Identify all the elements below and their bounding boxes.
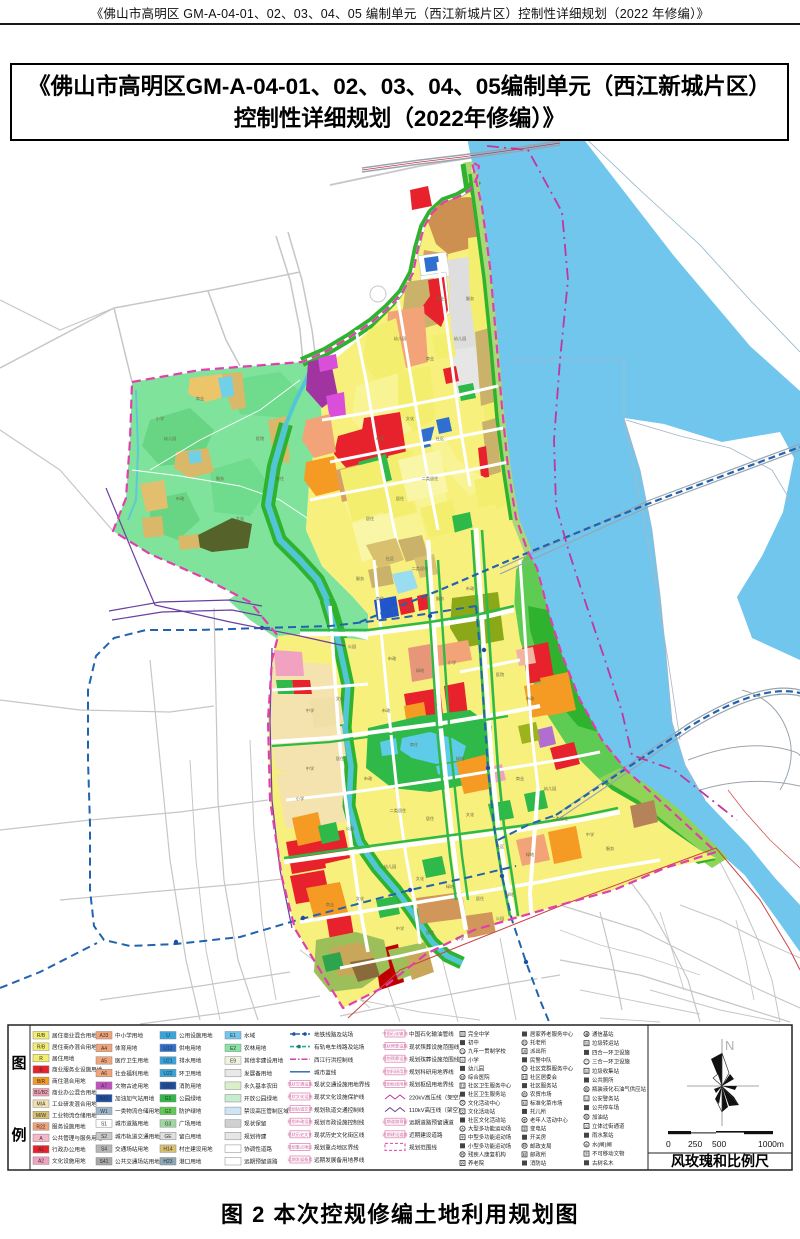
svg-text:居住: 居住 [366,515,375,522]
svg-text:S1: S1 [101,1121,107,1127]
svg-text:水: 水 [585,1142,589,1147]
svg-text:交通场站用地: 交通场站用地 [115,1145,149,1153]
svg-text:小学: 小学 [468,1056,479,1064]
svg-text:九年一贯制学校: 九年一贯制学校 [468,1047,506,1055]
svg-text:规划殡葬设施范围线: 规划殡葬设施范围线 [409,1055,460,1063]
svg-text:商住混合用地: 商住混合用地 [52,1077,86,1085]
svg-text:G3: G3 [165,1121,172,1127]
svg-text:社区服务站: 社区服务站 [530,1082,558,1090]
svg-text:绿地: 绿地 [416,667,425,673]
svg-text:风玫瑰和比例尺: 风玫瑰和比例尺 [671,1153,769,1169]
svg-text:公用设施用地: 公用设施用地 [179,1032,213,1040]
svg-text:有轨电车线路及站场: 有轨电车线路及站场 [314,1043,365,1051]
svg-text:市政: 市政 [376,435,385,442]
svg-text:幼儿园: 幼儿园 [394,335,407,342]
svg-text:邮政支局: 邮政支局 [530,1142,552,1150]
svg-text:绿地: 绿地 [506,891,515,897]
svg-text:古树名木: 古树名木 [592,1159,614,1167]
svg-text:体育用地: 体育用地 [115,1044,138,1052]
svg-text:居住: 居住 [396,495,405,502]
svg-text:1000m: 1000m [758,1139,784,1149]
svg-text:居住用地: 居住用地 [52,1054,75,1062]
svg-text:完全中学: 完全中学 [468,1030,490,1038]
svg-text:服务: 服务 [466,295,475,302]
svg-text:社区卫生服务中心: 社区卫生服务中心 [468,1082,512,1090]
svg-text:规划范围线: 规划范围线 [409,1144,437,1152]
svg-text:垃: 垃 [585,1041,589,1046]
svg-text:商业: 商业 [326,901,334,908]
svg-text:老年人活动中心: 老年人活动中心 [530,1116,568,1124]
svg-text:公园绿地: 公园绿地 [179,1095,202,1103]
svg-text:社区: 社区 [386,555,394,562]
svg-text:市政: 市政 [466,585,475,592]
svg-text:环卫用地: 环卫用地 [179,1069,202,1077]
svg-text:市政: 市政 [526,695,535,702]
svg-text:文化: 文化 [416,875,425,882]
svg-text:小: 小 [461,1057,465,1062]
svg-text:综合医院: 综合医院 [468,1073,490,1081]
svg-text:小学: 小学 [456,935,464,942]
svg-text:220kV高压线（架空）: 220kV高压线（架空） [409,1094,464,1102]
svg-text:城市道路用地: 城市道路用地 [115,1120,149,1128]
svg-text:规划轨道交通: 规划轨道交通 [287,1106,313,1113]
svg-text:文化: 文化 [356,895,365,902]
svg-text:B1/B2: B1/B2 [34,1090,48,1096]
svg-text:远期道路预留: 远期道路预留 [382,1118,407,1125]
svg-text:R/B: R/B [37,1033,46,1039]
svg-text:初中: 初中 [468,1039,479,1047]
svg-text:居住商业混合用地: 居住商业混合用地 [52,1032,97,1040]
svg-text:立体过街通道: 立体过街通道 [592,1122,625,1130]
svg-text:居住: 居住 [476,895,485,902]
svg-text:A2: A2 [38,1159,44,1165]
svg-text:垃圾转运站: 垃圾转运站 [592,1039,620,1047]
svg-text:中学: 中学 [306,707,314,714]
svg-text:商业办公混合用地: 商业办公混合用地 [52,1089,97,1097]
svg-text:U31: U31 [163,1084,172,1090]
svg-text:托老所: 托老所 [530,1039,547,1047]
svg-text:居住: 居住 [336,755,345,762]
svg-text:加油站: 加油站 [592,1113,609,1121]
svg-text:A33: A33 [100,1033,109,1039]
svg-text:开放公园绿地: 开放公园绿地 [244,1095,278,1103]
svg-text:四合一环卫设施: 四合一环卫设施 [592,1048,630,1056]
svg-text:现状文化设施: 现状文化设施 [287,1093,313,1100]
svg-text:社区: 社区 [496,843,504,850]
svg-text:幼儿园: 幼儿园 [384,863,397,870]
svg-text:文化设施用地: 文化设施用地 [52,1157,86,1165]
svg-text:S4: S4 [101,1147,107,1153]
svg-text:邮政所: 邮政所 [530,1150,547,1158]
svg-text:文化: 文化 [336,695,345,702]
svg-text:二类居住: 二类居住 [390,807,408,814]
svg-text:公共交通场站用地: 公共交通场站用地 [115,1158,160,1166]
svg-text:近期建设道路: 近期建设道路 [382,1131,408,1138]
svg-text:消防站: 消防站 [530,1159,547,1167]
svg-text:服务设施用地: 服务设施用地 [52,1123,86,1131]
svg-text:商业服务业设施用地: 商业服务业设施用地 [52,1066,103,1074]
svg-text:公共管理与服务用地: 公共管理与服务用地 [52,1134,103,1142]
svg-text:公: 公 [585,1096,589,1101]
svg-text:现状交通设施用地界线: 现状交通设施用地界线 [314,1081,370,1089]
svg-text:500: 500 [712,1139,726,1149]
svg-text:规划重点地区: 规划重点地区 [287,1143,312,1150]
svg-text:老: 老 [523,1117,527,1122]
svg-text:医院: 医院 [496,671,505,678]
svg-text:现状殡葬设施: 现状殡葬设施 [382,1043,408,1050]
svg-text:二类居住: 二类居住 [422,475,440,482]
svg-text:养: 养 [461,1161,465,1166]
svg-text:小型多功能运动场: 小型多功能运动场 [468,1142,512,1150]
svg-text:绿地: 绿地 [446,883,455,889]
svg-text:垃圾收集站: 垃圾收集站 [592,1067,620,1075]
svg-text:农贸市场: 农贸市场 [530,1090,552,1098]
svg-text:工业研发混合用地: 工业研发混合用地 [52,1100,97,1108]
svg-text:A7: A7 [101,1084,107,1090]
svg-text:留白用地: 留白用地 [179,1132,202,1140]
svg-text:瓶: 瓶 [585,1087,589,1092]
svg-text:小学: 小学 [448,659,456,666]
svg-text:中小学用地: 中小学用地 [115,1032,143,1040]
svg-text:商住: 商住 [276,475,285,482]
svg-text:中: 中 [461,1135,465,1140]
svg-text:幼儿园: 幼儿园 [468,1064,484,1072]
svg-text:U21: U21 [163,1058,172,1064]
svg-text:残疾人康复机构: 残疾人康复机构 [468,1150,506,1158]
svg-text:农: 农 [523,1092,527,1097]
svg-text:E1: E1 [230,1033,236,1039]
svg-text:A5: A5 [101,1058,107,1064]
svg-text:九: 九 [461,1049,465,1054]
svg-text:二类居住: 二类居住 [412,565,430,572]
svg-text:服务: 服务 [436,595,445,602]
svg-text:防护绿地: 防护绿地 [179,1107,202,1115]
svg-text:完: 完 [461,1032,465,1037]
svg-text:H14: H14 [163,1147,172,1153]
svg-text:社会福利用地: 社会福利用地 [115,1069,149,1077]
svg-text:S2: S2 [101,1134,107,1140]
svg-text:规划枢纽用地界线: 规划枢纽用地界线 [409,1081,454,1089]
svg-text:规划枢纽用地: 规划枢纽用地 [382,1080,408,1087]
svg-text:服务: 服务 [216,475,225,482]
svg-text:通: 通 [585,1031,589,1036]
svg-text:GE: GE [164,1134,172,1140]
svg-text:变: 变 [523,1126,527,1131]
svg-text:市政: 市政 [176,495,185,502]
svg-text:市政: 市政 [382,707,391,714]
svg-text:H23: H23 [163,1159,172,1165]
svg-text:小学: 小学 [296,795,304,802]
svg-text:规划重点地区界线: 规划重点地区界线 [314,1144,359,1152]
svg-text:规划殡葬设施: 规划殡葬设施 [382,1055,408,1062]
svg-text:加: 加 [585,1114,589,1119]
svg-text:民警中队: 民警中队 [530,1056,552,1064]
svg-text:医疗卫生用地: 医疗卫生用地 [115,1057,149,1065]
svg-text:地铁线路及站场: 地铁线路及站场 [314,1031,354,1039]
svg-text:水(闸)闸: 水(闸)闸 [592,1140,612,1148]
svg-text:工业物流仓储用地: 工业物流仓储用地 [52,1111,97,1119]
svg-text:现状文化设施保护线: 现状文化设施保护线 [314,1093,365,1101]
svg-text:残: 残 [461,1152,465,1157]
svg-text:M/W: M/W [36,1113,47,1119]
svg-text:A6: A6 [101,1071,107,1077]
svg-text:幼儿园: 幼儿园 [544,785,557,792]
svg-text:大型多功能运动场: 大型多功能运动场 [468,1125,512,1133]
svg-text:通信基站: 通信基站 [592,1030,614,1038]
svg-text:规划轨道交通控制线: 规划轨道交通控制线 [314,1106,365,1114]
svg-text:医院: 医院 [256,435,265,442]
svg-text:现状保留: 现状保留 [244,1120,267,1128]
svg-text:商业: 商业 [516,775,524,782]
svg-text:社区: 社区 [436,435,444,442]
svg-text:N: N [725,1038,734,1053]
svg-text:商住: 商住 [410,741,419,748]
svg-text:变电站: 变电站 [530,1125,547,1133]
svg-text:文化活动站: 文化活动站 [468,1107,496,1115]
svg-text:幼儿园: 幼儿园 [454,335,467,342]
svg-text:A4: A4 [101,1046,107,1052]
svg-text:公安警务站: 公安警务站 [592,1094,620,1102]
svg-text:U22: U22 [163,1071,172,1077]
svg-text:社: 社 [461,1083,465,1088]
svg-text:远期预留道路: 远期预留道路 [244,1158,278,1166]
svg-text:市政: 市政 [388,655,397,662]
svg-text:现状交通设施: 现状交通设施 [287,1080,313,1087]
svg-text:标准化菜市场: 标准化菜市场 [530,1099,563,1107]
svg-text:禁设高压管制区域: 禁设高压管制区域 [244,1107,289,1115]
svg-text:城市蓝线: 城市蓝线 [314,1068,337,1076]
svg-text:托: 托 [523,1040,527,1045]
svg-text:托儿所: 托儿所 [530,1107,547,1115]
svg-text:居住商办混合用地: 居住商办混合用地 [52,1043,97,1051]
svg-text:U: U [166,1033,170,1039]
svg-text:B41: B41 [100,1096,109,1102]
svg-text:绿地: 绿地 [526,851,535,857]
svg-text:远期发展备用: 远期发展备用 [287,1156,312,1163]
svg-text:R: R [39,1056,43,1062]
svg-text:排水用地: 排水用地 [179,1057,202,1065]
svg-text:R/B: R/B [37,1045,46,1051]
svg-text:110kV高压线（架空）: 110kV高压线（架空） [409,1106,464,1114]
svg-text:E9: E9 [230,1058,236,1064]
svg-text:二类居住: 二类居住 [552,815,570,822]
svg-text:社: 社 [523,1066,527,1071]
svg-text:村庄建设用地: 村庄建设用地 [179,1145,213,1153]
svg-text:综: 综 [461,1074,465,1079]
svg-text:B/R: B/R [37,1079,46,1085]
svg-text:规划科研用地: 规划科研用地 [382,1068,408,1075]
svg-text:服务: 服务 [606,845,615,852]
svg-text:社区党群服务中心: 社区党群服务中心 [530,1064,574,1072]
svg-text:现状历史文化: 现状历史文化 [287,1131,313,1138]
svg-text:行政办公用地: 行政办公用地 [52,1146,86,1154]
svg-text:U12: U12 [163,1046,172,1052]
svg-text:近期建设道路: 近期建设道路 [409,1131,443,1139]
svg-text:服务: 服务 [356,575,365,582]
svg-text:农林用地: 农林用地 [244,1044,267,1052]
svg-text:商业: 商业 [426,355,434,362]
svg-text:0: 0 [666,1139,671,1149]
svg-text:派出所: 派出所 [530,1047,547,1055]
svg-text:居家养老服务中心: 居家养老服务中心 [530,1030,574,1038]
svg-text:绿地: 绿地 [456,755,465,761]
svg-text:商业: 商业 [196,395,204,402]
svg-text:养老院: 养老院 [468,1159,485,1167]
svg-text:文: 文 [461,1109,465,1114]
svg-text:远期道路预留通道: 远期道路预留通道 [409,1118,454,1126]
svg-text:远期发展备用地界线: 远期发展备用地界线 [314,1156,365,1164]
svg-text:水域: 水域 [244,1032,256,1040]
svg-text:规划科研用地界线: 规划科研用地界线 [409,1068,454,1076]
svg-text:居住: 居住 [426,815,435,822]
svg-text:港口用地: 港口用地 [179,1158,202,1166]
svg-text:中学: 中学 [586,831,594,838]
svg-text:中学: 中学 [306,765,314,772]
svg-text:社区卫生服务站: 社区卫生服务站 [468,1090,506,1098]
svg-text:小学: 小学 [156,415,164,422]
svg-text:立: 立 [585,1124,589,1129]
svg-text:中型多功能运动场: 中型多功能运动场 [468,1133,512,1141]
svg-text:供电用地: 供电用地 [179,1044,202,1052]
svg-text:消防用地: 消防用地 [179,1082,202,1090]
svg-text:发展备用地: 发展备用地 [244,1069,272,1077]
svg-text:社: 社 [523,1075,527,1080]
svg-text:规划待建: 规划待建 [244,1132,267,1140]
svg-text:中学: 中学 [396,925,404,932]
svg-text:派: 派 [523,1049,527,1054]
svg-text:西江行洪控制线: 西江行洪控制线 [314,1056,354,1064]
svg-text:文化: 文化 [236,515,245,522]
svg-text:三合一环卫设施: 三合一环卫设施 [592,1058,630,1066]
svg-text:市政: 市政 [364,775,373,782]
svg-text:开关房: 开关房 [530,1133,546,1141]
svg-text:R22: R22 [36,1124,45,1130]
svg-text:其他非建设用地: 其他非建设用地 [244,1057,284,1065]
svg-text:不: 不 [585,1152,589,1156]
svg-text:规划市政设施: 规划市政设施 [287,1118,313,1125]
svg-text:G1: G1 [165,1096,172,1102]
svg-text:250: 250 [688,1139,702,1149]
svg-text:城市轨道交通用地: 城市轨道交通用地 [115,1132,160,1140]
svg-text:文化活动中心: 文化活动中心 [468,1099,501,1107]
svg-text:文化: 文化 [406,415,415,422]
svg-text:例: 例 [11,1126,26,1144]
svg-text:公共停车场: 公共停车场 [592,1104,620,1112]
svg-text:瓶装液化石油气供应站: 瓶装液化石油气供应站 [592,1085,647,1093]
svg-text:加油加气站用地: 加油加气站用地 [115,1095,155,1103]
svg-text:三: 三 [585,1060,589,1064]
svg-text:M/A: M/A [37,1102,47,1108]
svg-text:中国石化输油管线: 中国石化输油管线 [409,1030,454,1038]
svg-text:G2: G2 [165,1109,172,1115]
svg-text:E2: E2 [230,1046,236,1052]
svg-text:规划市政设施控制线: 规划市政设施控制线 [314,1118,365,1126]
svg-text:邮: 邮 [523,1143,527,1148]
svg-text:居住: 居住 [426,929,435,936]
svg-text:现状历史文化街区线: 现状历史文化街区线 [314,1131,365,1139]
svg-text:一类物流仓储用地: 一类物流仓储用地 [115,1107,160,1115]
svg-text:幼儿园: 幼儿园 [164,435,177,442]
svg-text:垃: 垃 [585,1068,589,1073]
svg-text:文: 文 [461,1100,465,1105]
svg-text:A1: A1 [38,1147,44,1153]
svg-text:文化: 文化 [466,811,475,818]
svg-text:商业: 商业 [436,295,444,302]
svg-text:小学: 小学 [406,605,414,612]
svg-text:S41: S41 [100,1159,109,1165]
svg-text:W1: W1 [100,1109,108,1115]
svg-text:社区文化活动站: 社区文化活动站 [468,1116,506,1124]
svg-text:中国石化输油: 中国石化输油 [382,1030,407,1037]
svg-text:图: 图 [11,1055,26,1072]
svg-text:现状殡葬设施范围线: 现状殡葬设施范围线 [409,1043,460,1051]
svg-text:广场用地: 广场用地 [179,1120,202,1128]
svg-text:大: 大 [461,1126,465,1131]
svg-text:协调性道路: 协调性道路 [244,1145,272,1153]
svg-text:社区居委会: 社区居委会 [530,1073,558,1081]
svg-text:雨水泵站: 雨水泵站 [592,1131,614,1139]
svg-text:永久基本农田: 永久基本农田 [244,1082,278,1090]
svg-text:文物古迹用地: 文物古迹用地 [115,1082,149,1090]
svg-text:标: 标 [523,1100,527,1105]
svg-text:商住: 商住 [376,595,385,602]
svg-text:不可移动文物: 不可移动文物 [592,1150,625,1158]
svg-text:邮: 邮 [523,1152,527,1157]
svg-text:公共厕所: 公共厕所 [592,1076,614,1084]
